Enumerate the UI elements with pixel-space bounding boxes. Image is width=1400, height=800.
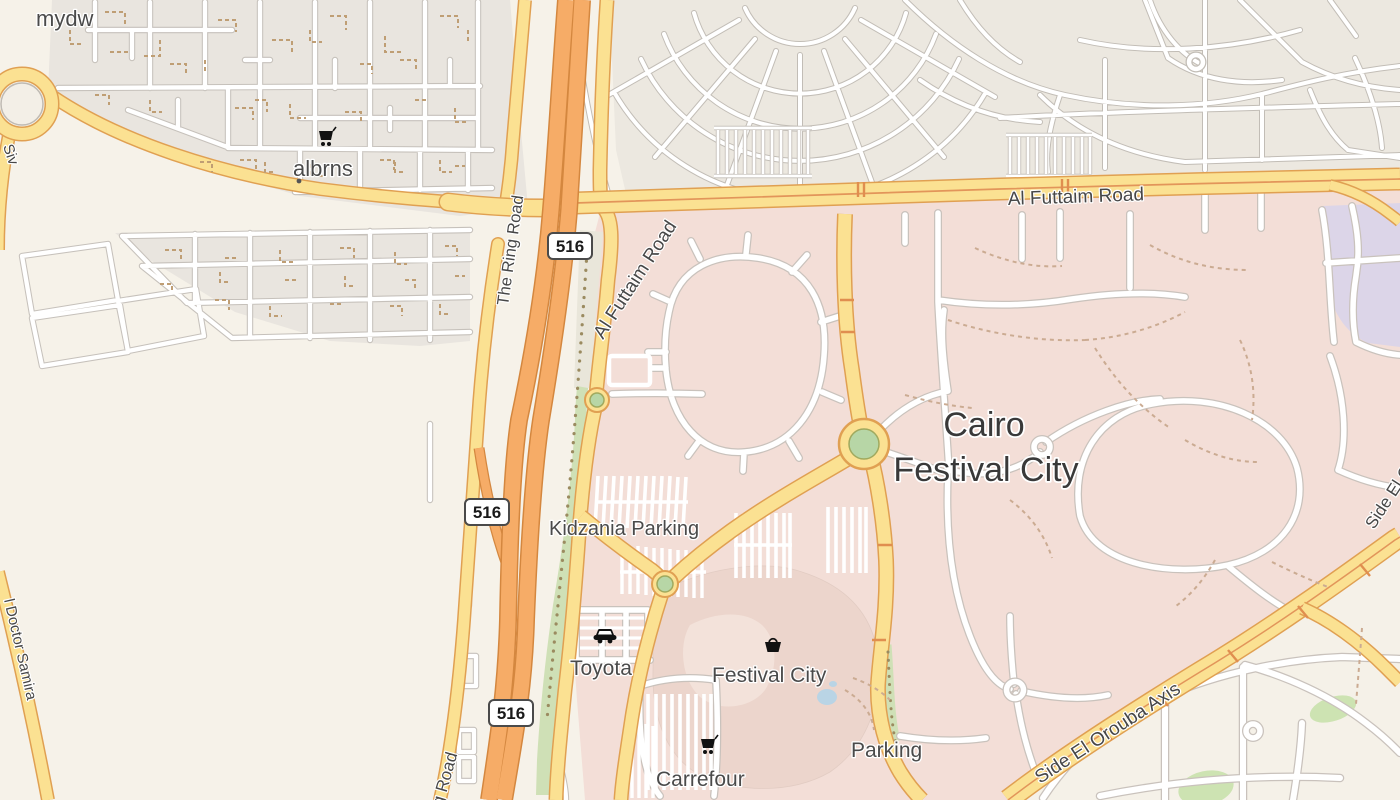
svg-text:mydw: mydw xyxy=(36,6,94,31)
svg-text:516: 516 xyxy=(497,704,525,723)
svg-text:Festival City: Festival City xyxy=(712,664,827,687)
svg-text:516: 516 xyxy=(556,237,584,256)
svg-text:Parking: Parking xyxy=(851,739,922,762)
svg-text:Kidzania Parking: Kidzania Parking xyxy=(549,518,699,540)
svg-text:Carrefour: Carrefour xyxy=(656,768,745,791)
svg-text:Festival City: Festival City xyxy=(893,451,1078,489)
svg-text:albrns: albrns xyxy=(293,156,353,181)
svg-text:516: 516 xyxy=(473,503,501,522)
svg-text:Cairo: Cairo xyxy=(943,406,1024,444)
svg-text:Toyota: Toyota xyxy=(570,657,632,680)
